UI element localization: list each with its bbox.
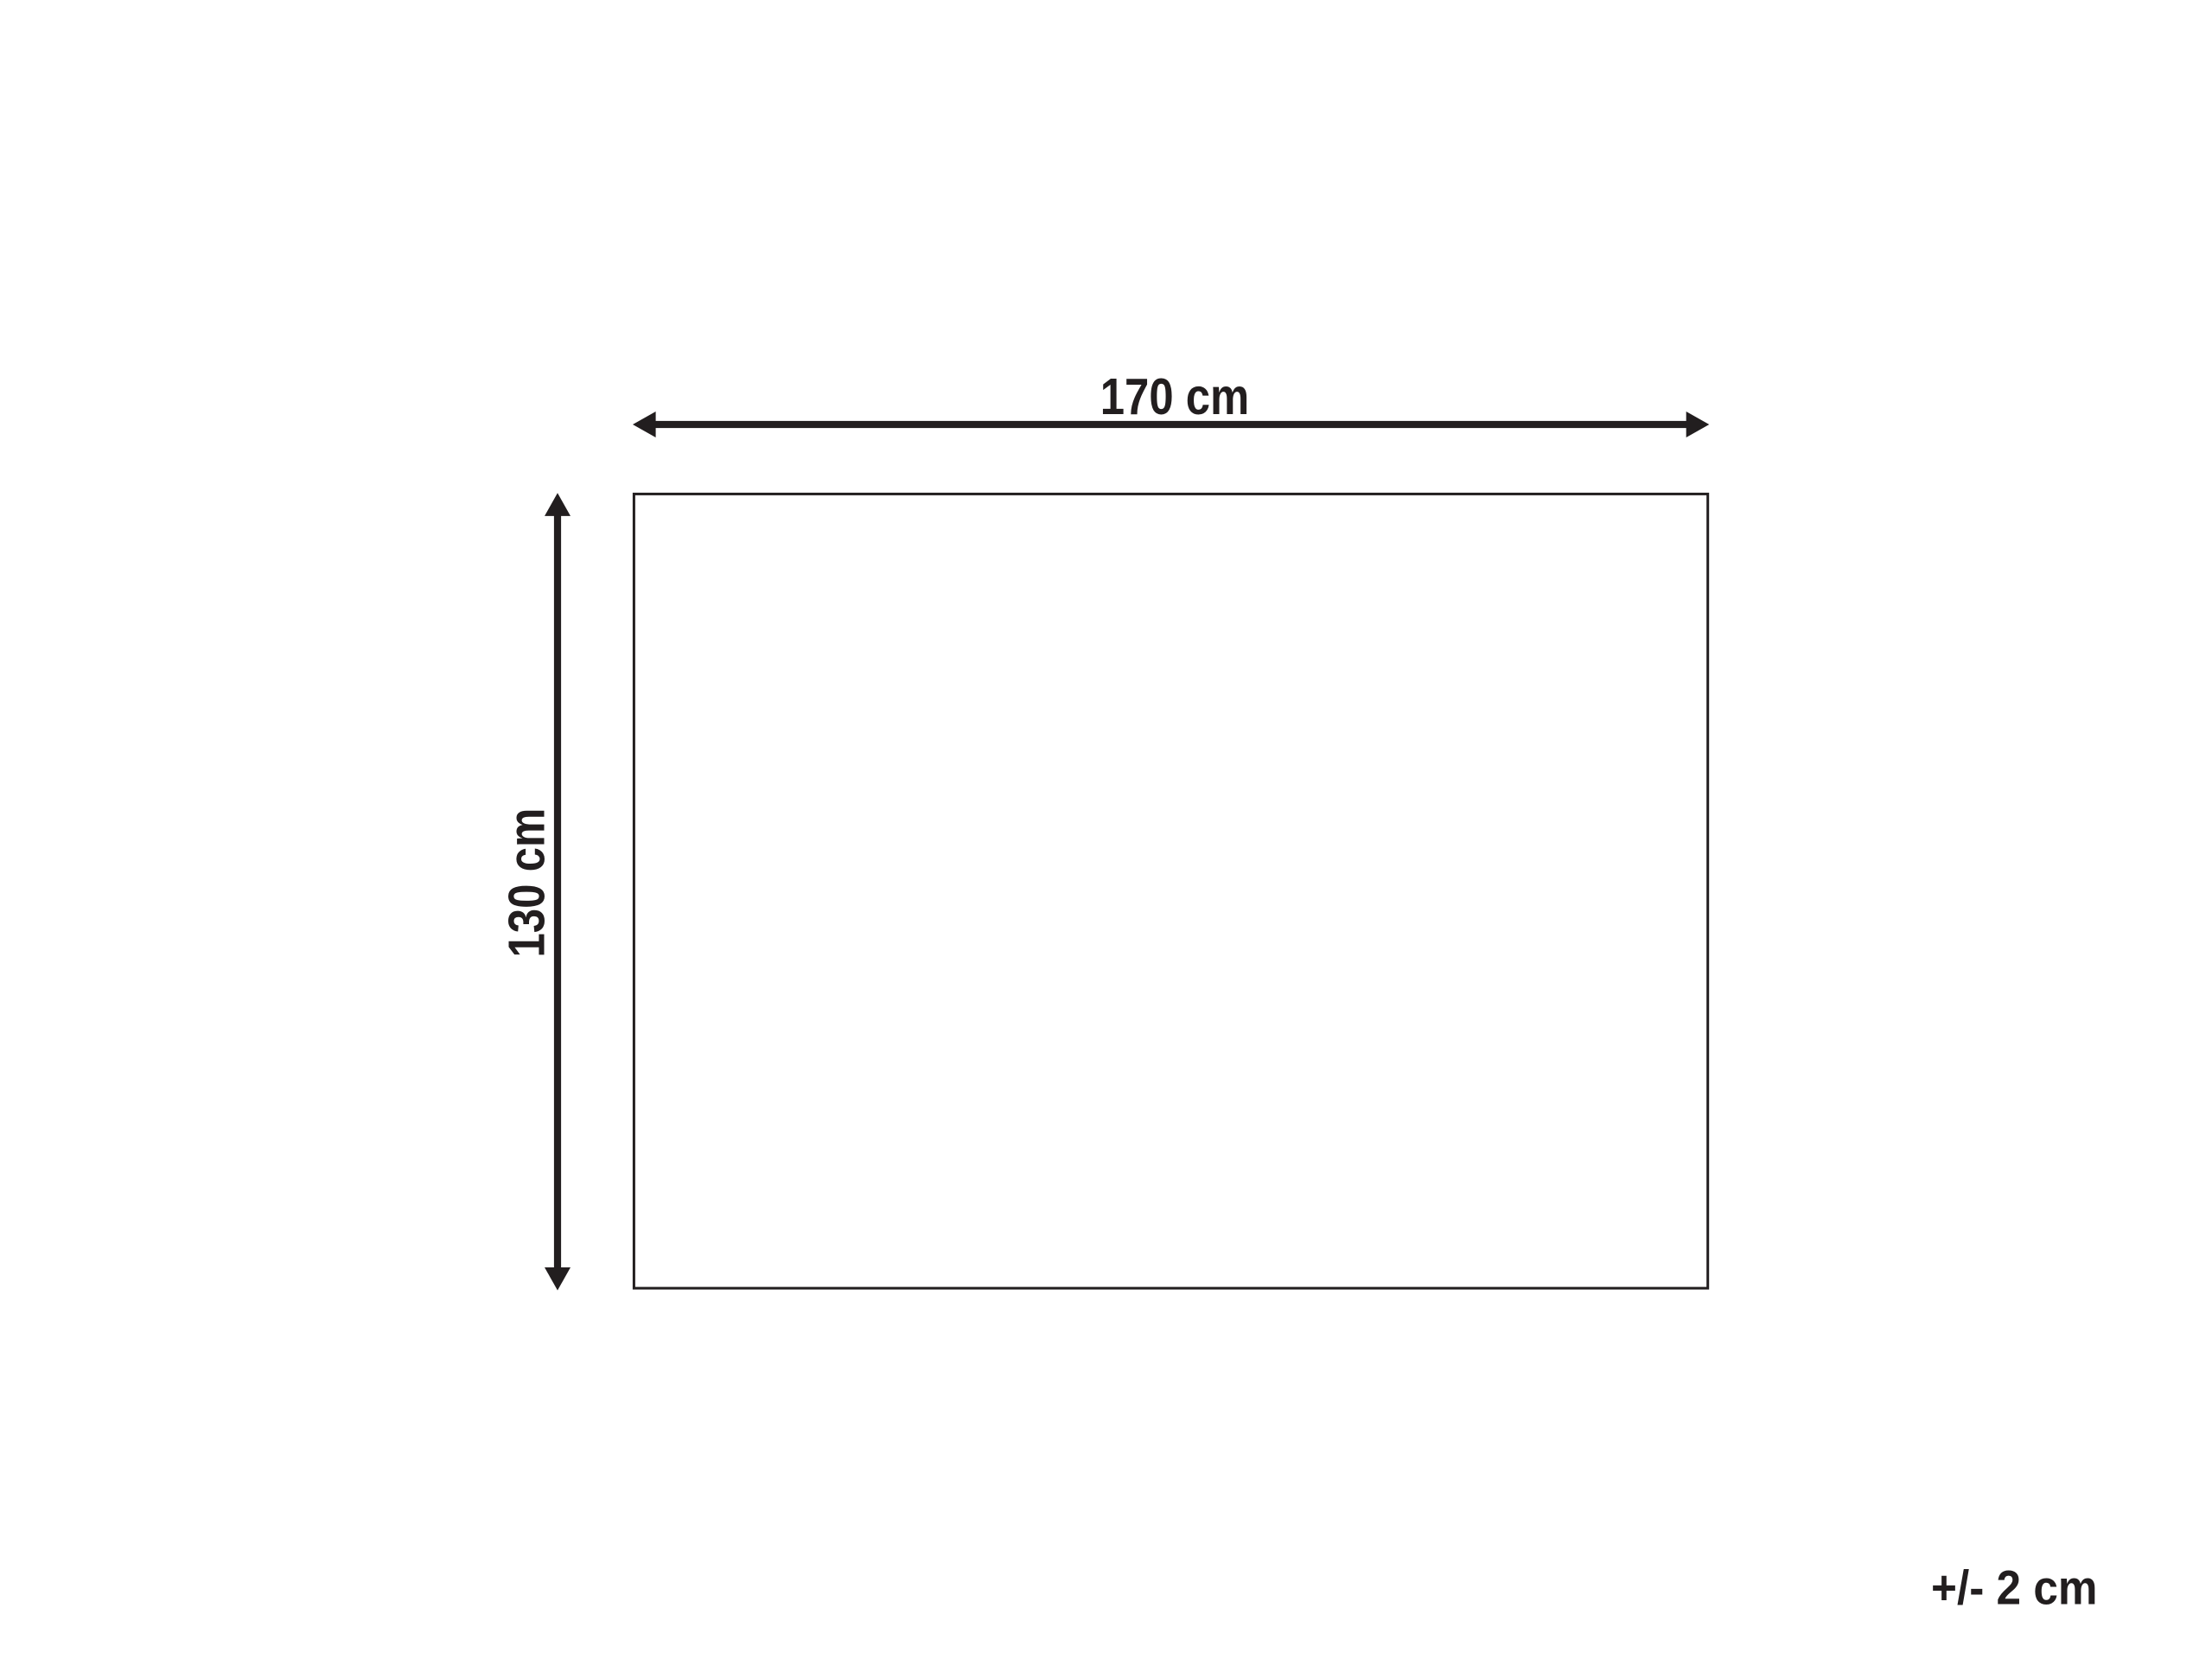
svg-text:+/- 2 cm: +/- 2 cm <box>1931 1560 2098 1615</box>
svg-text:130 cm: 130 cm <box>499 808 556 958</box>
svg-text:170 cm: 170 cm <box>1100 368 1250 425</box>
